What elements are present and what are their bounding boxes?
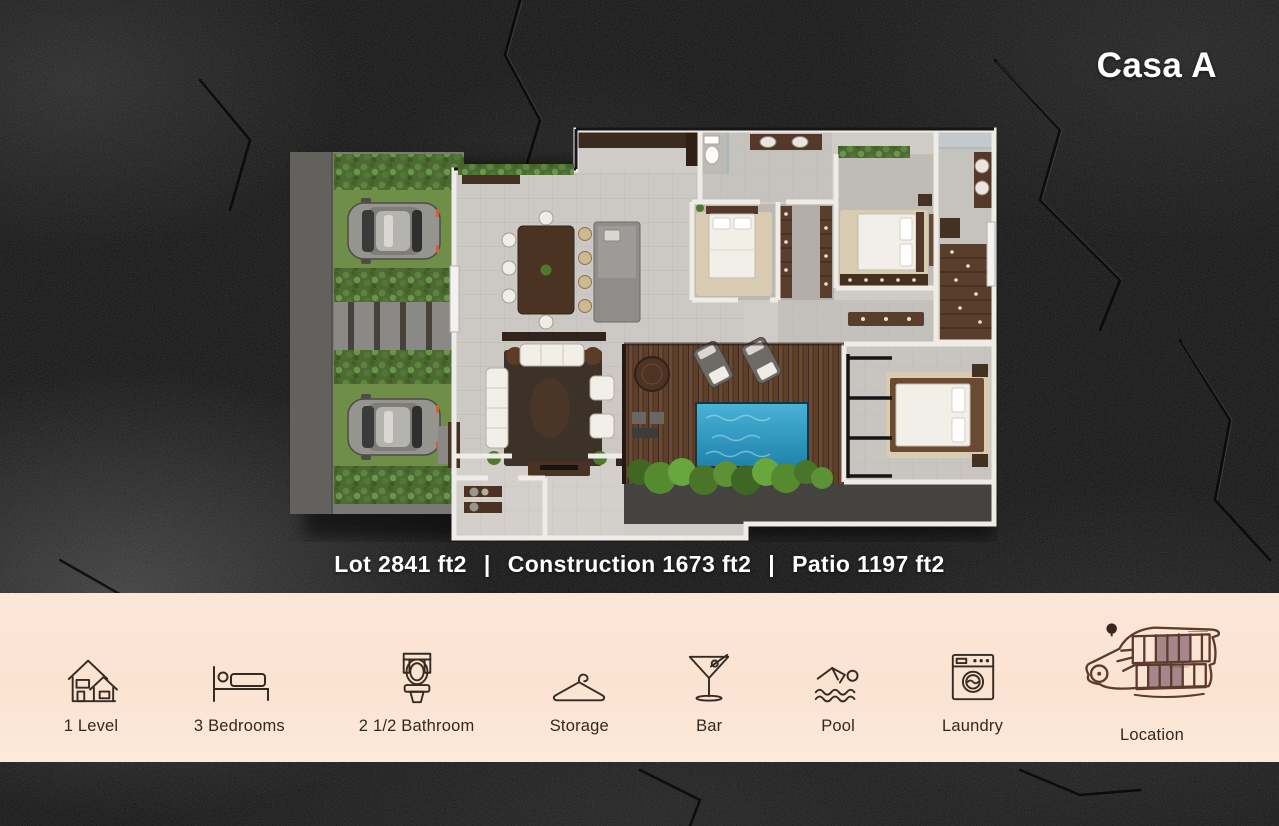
swimmer-icon <box>808 648 868 706</box>
feature-bathrooms: 2 1/2 Bathroom <box>359 648 475 736</box>
flyer-page: Casa A Lot 2841 ft2|Construction 1673 ft… <box>0 0 1279 826</box>
feature-label: Pool <box>821 717 855 736</box>
martini-icon <box>684 648 734 706</box>
page-title: Casa A <box>1097 46 1217 86</box>
feature-storage: Storage <box>548 648 610 736</box>
feature-label: Storage <box>550 717 609 736</box>
house-icon <box>62 648 120 706</box>
feature-label: 1 Level <box>64 717 119 736</box>
feature-location: Location <box>1077 619 1227 745</box>
stat-patio: Patio 1197 ft2 <box>792 551 945 577</box>
stat-construction: Construction 1673 ft2 <box>508 551 752 577</box>
washing-machine-icon <box>948 648 998 706</box>
feature-pool: Pool <box>808 648 868 736</box>
stats-bar: Lot 2841 ft2|Construction 1673 ft2|Patio… <box>0 551 1279 578</box>
stat-separator: | <box>484 551 491 577</box>
stat-lot: Lot 2841 ft2 <box>334 551 467 577</box>
toilet-icon <box>396 648 438 706</box>
feature-levels: 1 Level <box>62 648 120 736</box>
feature-laundry: Laundry <box>942 648 1003 736</box>
bed-icon <box>207 648 271 706</box>
floorplan-image <box>288 126 998 542</box>
feature-label: Bar <box>696 717 722 736</box>
feature-bedrooms: 3 Bedrooms <box>194 648 285 736</box>
feature-label: 2 1/2 Bathroom <box>359 717 475 736</box>
features-bar: 1 Level 3 Bedrooms <box>0 593 1279 762</box>
stat-separator: | <box>768 551 775 577</box>
feature-bar: Bar <box>684 648 734 736</box>
feature-label: Location <box>1120 726 1184 745</box>
hanger-icon <box>548 648 610 706</box>
site-map-icon <box>1077 619 1227 715</box>
feature-label: 3 Bedrooms <box>194 717 285 736</box>
feature-label: Laundry <box>942 717 1003 736</box>
